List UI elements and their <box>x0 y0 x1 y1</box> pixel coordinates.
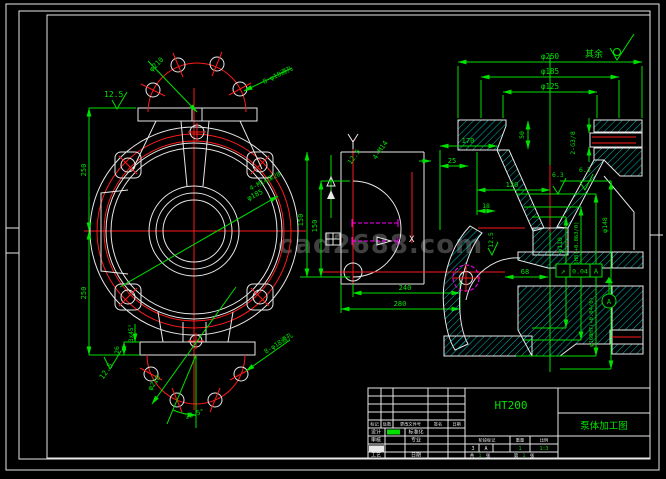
bearing-slot <box>610 330 643 344</box>
side-roughness-label: 12.5 <box>346 148 362 166</box>
roughness-125: 12.5 <box>487 232 498 255</box>
sheets-gong: 共 <box>470 452 475 459</box>
dim-d110: φ110 <box>556 237 564 253</box>
dim-150-lower: 150 <box>311 220 319 233</box>
dim-bolt-circle-bottom: φ210 <box>146 374 162 392</box>
row-process: 工艺 <box>371 453 381 459</box>
sheets-di: 第 <box>514 452 519 459</box>
filled-cell <box>369 446 384 452</box>
runout-symbol-icon: ↗ <box>561 267 566 276</box>
sheets-n1: 1 <box>479 453 482 459</box>
sheets-zhang1: 张 <box>486 452 491 459</box>
row-design: 设计 <box>371 429 381 436</box>
section-view: φ250 φ185 φ125 170 25 50 2-G3/8 120 18 6… <box>322 52 643 372</box>
hdr-docno: 更改文件号 <box>400 421 421 428</box>
front-view: φ210 8-φ18通孔 12.5 250 250 4-M14深28 φ185 <box>80 52 306 428</box>
hdr-count: 处数 <box>383 421 392 428</box>
dim-d125: φ125 <box>541 82 559 91</box>
roughness-63-a: 6.3 <box>552 171 566 194</box>
note-holes-top: 8-φ18通孔 <box>261 63 295 86</box>
dim-angle-bottom: 22.5° <box>184 407 205 421</box>
svg-text:12.5: 12.5 <box>487 232 495 248</box>
dim-250-upper: 250 <box>80 164 88 177</box>
dim-d160h7: φ160H7(+0.04/0) <box>589 297 595 347</box>
tolerance-frame: ↗ 0.04 A <box>556 264 602 277</box>
note-holes-bottom: 8-φ18通孔 <box>262 330 295 356</box>
material-block: HT200 阶段标记 重量 比例 3 A 1 1:3 共 1 张 第 1 张 <box>465 399 558 459</box>
dim-120: 120 <box>506 181 519 189</box>
surface-note-label: 其余 <box>585 48 603 60</box>
dim-240: 240 <box>399 284 412 292</box>
roughness-top-label: 12.5 <box>104 90 123 99</box>
cad-canvas: cad2688.com <box>0 0 666 479</box>
weight-value: 1 <box>518 446 521 452</box>
svg-text:6.3: 6.3 <box>552 171 564 179</box>
scale-label: 比例 <box>540 437 548 444</box>
fcf-tolerance: 0.04 <box>572 268 588 276</box>
stage-mark-label: 阶段标记 <box>479 437 497 444</box>
dim-68: 68 <box>521 268 529 276</box>
dim-d250: φ250 <box>541 52 560 61</box>
dim-chamfer: 3x45° <box>128 324 135 342</box>
dim-d185: φ185 <box>541 67 559 76</box>
roughness-bottom-label: 12.5 <box>97 361 115 381</box>
dim-150-upper: 150 <box>297 214 305 227</box>
suction-stub <box>101 190 128 274</box>
surface-roughness-top-icon: 12.5 <box>89 90 136 109</box>
svg-text:6.3: 6.3 <box>579 166 591 174</box>
row-major: 专业 <box>411 437 421 444</box>
designer-name-highlight <box>387 430 400 435</box>
row-review: 审核 <box>371 437 381 444</box>
dim-hub-dia: φ185 <box>246 188 265 203</box>
sheets-n2: 1 <box>523 453 526 459</box>
roughness-check-icon <box>610 34 634 60</box>
dim-d148: φ148 <box>601 217 609 233</box>
dim-280: 280 <box>394 300 407 308</box>
dim-18: 18 <box>482 202 490 210</box>
section-hatching <box>443 120 643 356</box>
side-view: 12.5 4-M14 X 150 150 240 280 <box>297 134 460 313</box>
drawing-sheet: cad2688.com <box>0 0 666 479</box>
volute-arc <box>353 181 401 277</box>
port-slot <box>590 133 642 147</box>
side-thread-note: 4-M14 <box>371 139 390 161</box>
surface-roughness-bottom-icon: 12.5 <box>97 351 121 381</box>
stage-value-2: A <box>484 446 487 452</box>
dim-bolt-circle-top: φ210 <box>148 56 166 74</box>
note-port: 2-G3/8 <box>569 131 577 155</box>
flange-dims: 26 3x45° <box>113 324 140 355</box>
sheets-zhang2: 张 <box>530 452 535 459</box>
material-label: HT200 <box>494 399 527 412</box>
surface-note: 其余 <box>585 34 634 60</box>
section-label-x: X <box>409 235 415 245</box>
row-standardize: 标准化 <box>408 429 423 436</box>
dim-170: 170 <box>462 137 475 145</box>
title-block: 标记 处数 更改文件号 签名 日期 设计 标准化 审核 专业 工艺 日期 HT2… <box>368 388 650 459</box>
drawing-title: 泵体加工图 <box>580 420 628 432</box>
hdr-date: 日期 <box>452 422 460 428</box>
dim-50: 50 <box>518 131 526 139</box>
dim-250-lower: 250 <box>80 287 88 300</box>
row-date: 日期 <box>411 453 421 459</box>
top-bolt-circle: φ210 8-φ18通孔 <box>141 52 295 112</box>
hdr-mark: 标记 <box>370 421 379 428</box>
stage-value-1: 3 <box>471 446 474 452</box>
hdr-sign: 签名 <box>434 421 442 428</box>
revision-grid: 标记 处数 更改文件号 签名 日期 设计 标准化 审核 专业 工艺 日期 <box>368 388 465 459</box>
scale-value: 1:3 <box>539 446 548 452</box>
dim-25: 25 <box>448 157 456 165</box>
drawing-title-block: 泵体加工图 <box>558 413 650 436</box>
weight-label: 重量 <box>516 437 524 444</box>
